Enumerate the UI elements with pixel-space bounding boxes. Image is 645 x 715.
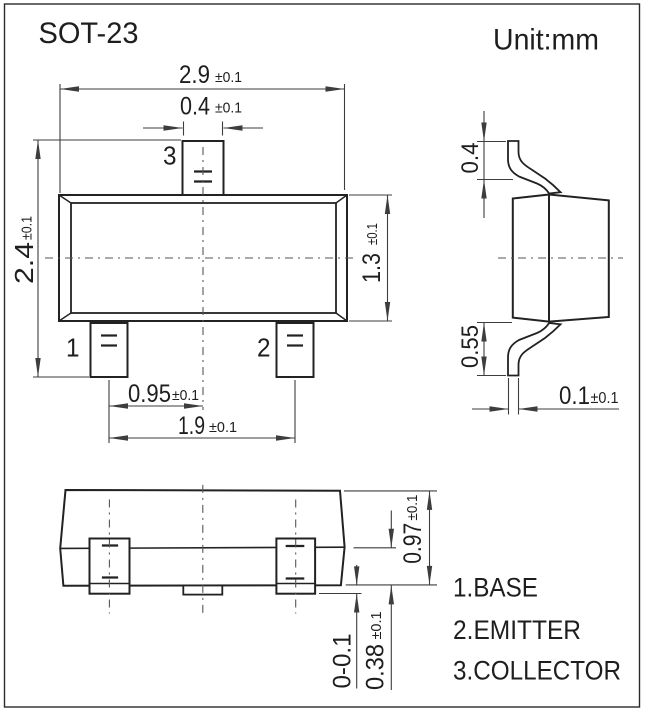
svg-text:±0.1: ±0.1 [19,216,36,240]
svg-text:±0.1: ±0.1 [368,612,385,640]
svg-text:±0.1: ±0.1 [404,495,421,521]
svg-text:1.BASE: 1.BASE [453,573,538,603]
svg-text:±0.1: ±0.1 [215,100,242,117]
svg-text:0-0.1: 0-0.1 [329,634,357,689]
svg-text:SOT-23: SOT-23 [39,17,139,50]
svg-text:0.55: 0.55 [457,325,484,368]
svg-text:2.EMITTER: 2.EMITTER [453,615,581,645]
svg-text:±0.1: ±0.1 [591,390,619,407]
svg-text:3.COLLECTOR: 3.COLLECTOR [453,656,621,686]
svg-text:3: 3 [163,141,177,171]
svg-text:0.1: 0.1 [559,382,590,410]
svg-text:±0.1: ±0.1 [215,69,242,86]
svg-text:0.4: 0.4 [180,93,210,121]
svg-text:1.3: 1.3 [358,253,386,283]
svg-text:0.97: 0.97 [399,523,427,564]
svg-text:±0.1: ±0.1 [172,387,199,404]
svg-text:0.38: 0.38 [362,644,390,690]
svg-text:Unit:mm: Unit:mm [493,24,599,57]
svg-text:1: 1 [66,333,80,363]
svg-text:±0.1: ±0.1 [209,419,237,436]
svg-text:2.9: 2.9 [179,61,210,89]
svg-text:0.95: 0.95 [128,380,171,408]
svg-text:0.4: 0.4 [457,143,484,174]
svg-text:2.4: 2.4 [9,242,39,284]
svg-text:1.9: 1.9 [178,412,205,440]
svg-text:2: 2 [257,333,271,363]
svg-text:±0.1: ±0.1 [364,223,381,245]
